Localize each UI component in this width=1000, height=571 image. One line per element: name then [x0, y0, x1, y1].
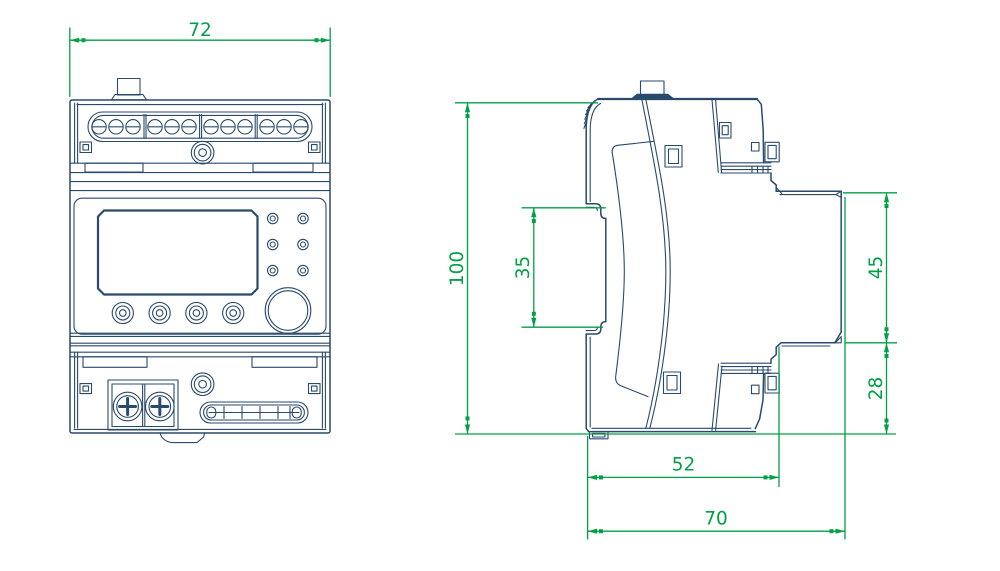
technical-drawing-canvas: 72: [0, 0, 1000, 571]
side-rear-ledge: [771, 188, 841, 363]
dimension-drawing-svg: 72: [0, 0, 1000, 571]
upper-depth-label: 45: [866, 256, 887, 280]
front-display: [98, 211, 258, 295]
side-view: [584, 81, 841, 439]
overall-height-label: 100: [447, 251, 468, 286]
front-top-button: [112, 79, 147, 100]
overall-depth-label: 70: [704, 509, 728, 530]
dimension-din-slot: 35: [513, 208, 606, 327]
front-view: [70, 79, 330, 443]
front-upper-side-slots: [80, 142, 320, 153]
side-upper-terminal-block: [712, 99, 779, 191]
side-top-button: [631, 81, 674, 99]
front-terminal-strip: [88, 112, 312, 142]
front-lower-screw: [191, 373, 214, 396]
front-upper-screw: [191, 141, 214, 164]
din-rail-slot: [586, 204, 606, 428]
front-width-label: 72: [188, 20, 212, 41]
side-lower-terminal-block: [712, 363, 779, 430]
dimension-front-width: 72: [70, 20, 330, 97]
front-lower-connector: [200, 402, 308, 423]
front-led-grid: [268, 213, 309, 275]
front-function-buttons: [112, 302, 244, 323]
lower-depth-label: 28: [866, 377, 887, 401]
dimension-overall-depth: 70: [588, 197, 845, 540]
knurl-grip-ticks: [584, 100, 596, 128]
front-terminal-block: [108, 380, 178, 430]
body-depth-label: 52: [672, 455, 696, 476]
din-clip-tab: [160, 433, 205, 443]
dimension-lower-depth: 28: [866, 343, 889, 434]
front-housing: [70, 100, 330, 443]
front-round-knob: [265, 288, 311, 334]
din-slot-label: 35: [513, 256, 534, 280]
side-release-clip-blade: [612, 99, 670, 428]
dimension-upper-depth: 45: [843, 193, 897, 343]
